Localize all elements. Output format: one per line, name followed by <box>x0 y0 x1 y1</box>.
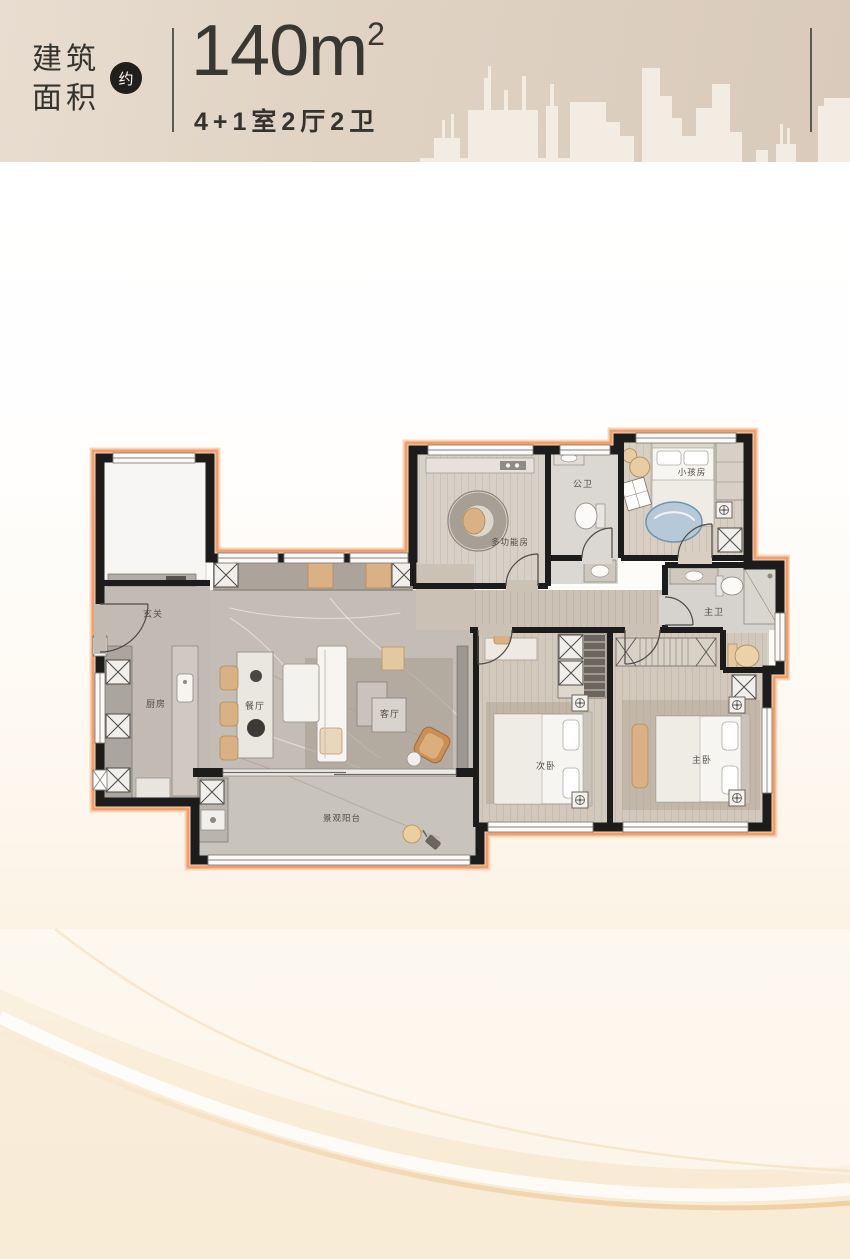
room-label-multi-function: 多功能房 <box>491 537 529 547</box>
header-divider-right <box>810 28 812 132</box>
room-label-master-bath: 主卫 <box>704 606 724 617</box>
balcony-sliding-door <box>193 768 476 777</box>
master-bedroom-wardrobe <box>616 638 716 666</box>
area-label-line1: 建筑 <box>32 43 100 76</box>
tv-console <box>457 646 468 770</box>
area-value-number: 140m <box>191 11 367 91</box>
layout-spec: 4+1室2厅2卫 <box>194 102 379 138</box>
room-label-public-bath: 公卫 <box>573 479 593 489</box>
area-label: 建筑面积 <box>32 40 100 118</box>
utility-room-floor <box>104 462 206 580</box>
balcony-table <box>403 825 421 843</box>
header-divider-left <box>172 28 174 132</box>
room-label-kids-room: 小孩房 <box>678 467 707 477</box>
room-label-dining: 餐厅 <box>245 700 265 711</box>
room-label-second-bedroom: 次卧 <box>536 760 556 771</box>
room-label-kitchen: 厨房 <box>146 698 166 709</box>
area-label-line2: 面积 <box>32 82 100 115</box>
floorplan: 玄关 厨房 餐厅 客厅 多功能房 公卫 小孩房 主卫 次卧 主卧 景观阳台 <box>80 418 790 878</box>
room-label-living: 客厅 <box>380 708 400 719</box>
toilet <box>575 503 597 529</box>
area-value-superscript: 2 <box>367 16 385 52</box>
header: 建筑面积 约 140m2 4+1室2厅2卫 <box>0 0 850 162</box>
area-value: 140m2 <box>191 10 385 92</box>
room-label-foyer: 玄关 <box>143 608 163 619</box>
kids-rug <box>646 502 702 542</box>
poster-page: 建筑面积 约 140m2 4+1室2厅2卫 <box>0 0 850 1259</box>
content-area: 玄关 厨房 餐厅 客厅 多功能房 公卫 小孩房 主卫 次卧 主卧 景观阳台 <box>0 162 850 1259</box>
city-skyline-silhouette <box>420 40 850 162</box>
approx-badge-text: 约 <box>118 68 133 89</box>
room-label-balcony: 景观阳台 <box>323 813 361 823</box>
approx-badge: 约 <box>110 62 142 94</box>
decorative-swoosh <box>0 929 850 1259</box>
master-bath-toilet <box>735 645 759 667</box>
room-label-master-bedroom: 主卧 <box>692 754 712 765</box>
